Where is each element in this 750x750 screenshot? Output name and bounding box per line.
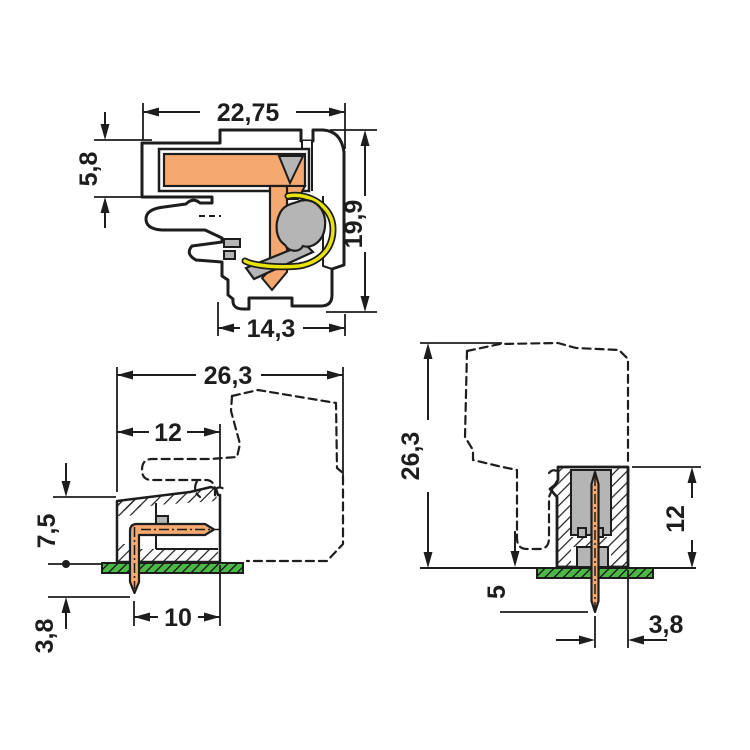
mating-connector-outline: [467, 343, 628, 461]
latch-nub-upper: [224, 239, 240, 247]
dim-total-width: 26,3: [117, 362, 343, 492]
dimension-drawing: 22,75 5,8 19,9 14,3: [0, 0, 750, 750]
dim-pin-below-board: 3,8: [31, 597, 130, 653]
dim-label: 22,75: [217, 99, 280, 127]
dim-pin-to-edge: 3,8: [556, 570, 683, 648]
section-view: 22,75 5,8 19,9 14,3: [75, 99, 377, 343]
dim-pin-to-face: 10: [134, 565, 220, 632]
dim-label: 12: [662, 505, 690, 533]
dim-label: 5: [483, 585, 511, 599]
cam-insert: [277, 200, 326, 251]
dim-label: 3,8: [649, 611, 684, 639]
dim-label: 3,8: [31, 619, 59, 654]
mating-connector-outline: [232, 390, 343, 561]
dim-label: 26,3: [397, 432, 425, 481]
dim-label: 10: [164, 604, 192, 632]
drawing-canvas: 22,75 5,8 19,9 14,3: [0, 0, 750, 750]
dim-housing-height: 12: [632, 467, 701, 568]
dim-label: 14,3: [247, 315, 296, 343]
dim-chain-dot: [62, 560, 70, 568]
dim-housing-height: 7,5: [33, 463, 116, 568]
housing-hatch-left: [551, 468, 571, 566]
pcb-hatch: [102, 563, 243, 573]
side-view: 26,3 12 7,5 3,8: [31, 362, 343, 653]
dim-label: 7,5: [33, 514, 61, 549]
front-view: 26,3 12 5 3,8: [397, 343, 701, 648]
dim-housing-width: 12: [117, 419, 220, 487]
latch-nub-lower: [224, 251, 235, 259]
housing-hatch-left: [118, 498, 141, 516]
dim-label: 5,8: [75, 152, 103, 187]
mating-connector-lever: [465, 351, 552, 549]
housing-hatch-right: [611, 468, 628, 567]
dim-total-height: 26,3: [397, 343, 502, 568]
dim-label: 12: [154, 419, 182, 447]
dim-label: 19,9: [340, 200, 368, 249]
cavity-step-left: [578, 528, 586, 537]
dim-label: 26,3: [204, 362, 253, 390]
housing-hatch-bottom: [133, 549, 218, 562]
